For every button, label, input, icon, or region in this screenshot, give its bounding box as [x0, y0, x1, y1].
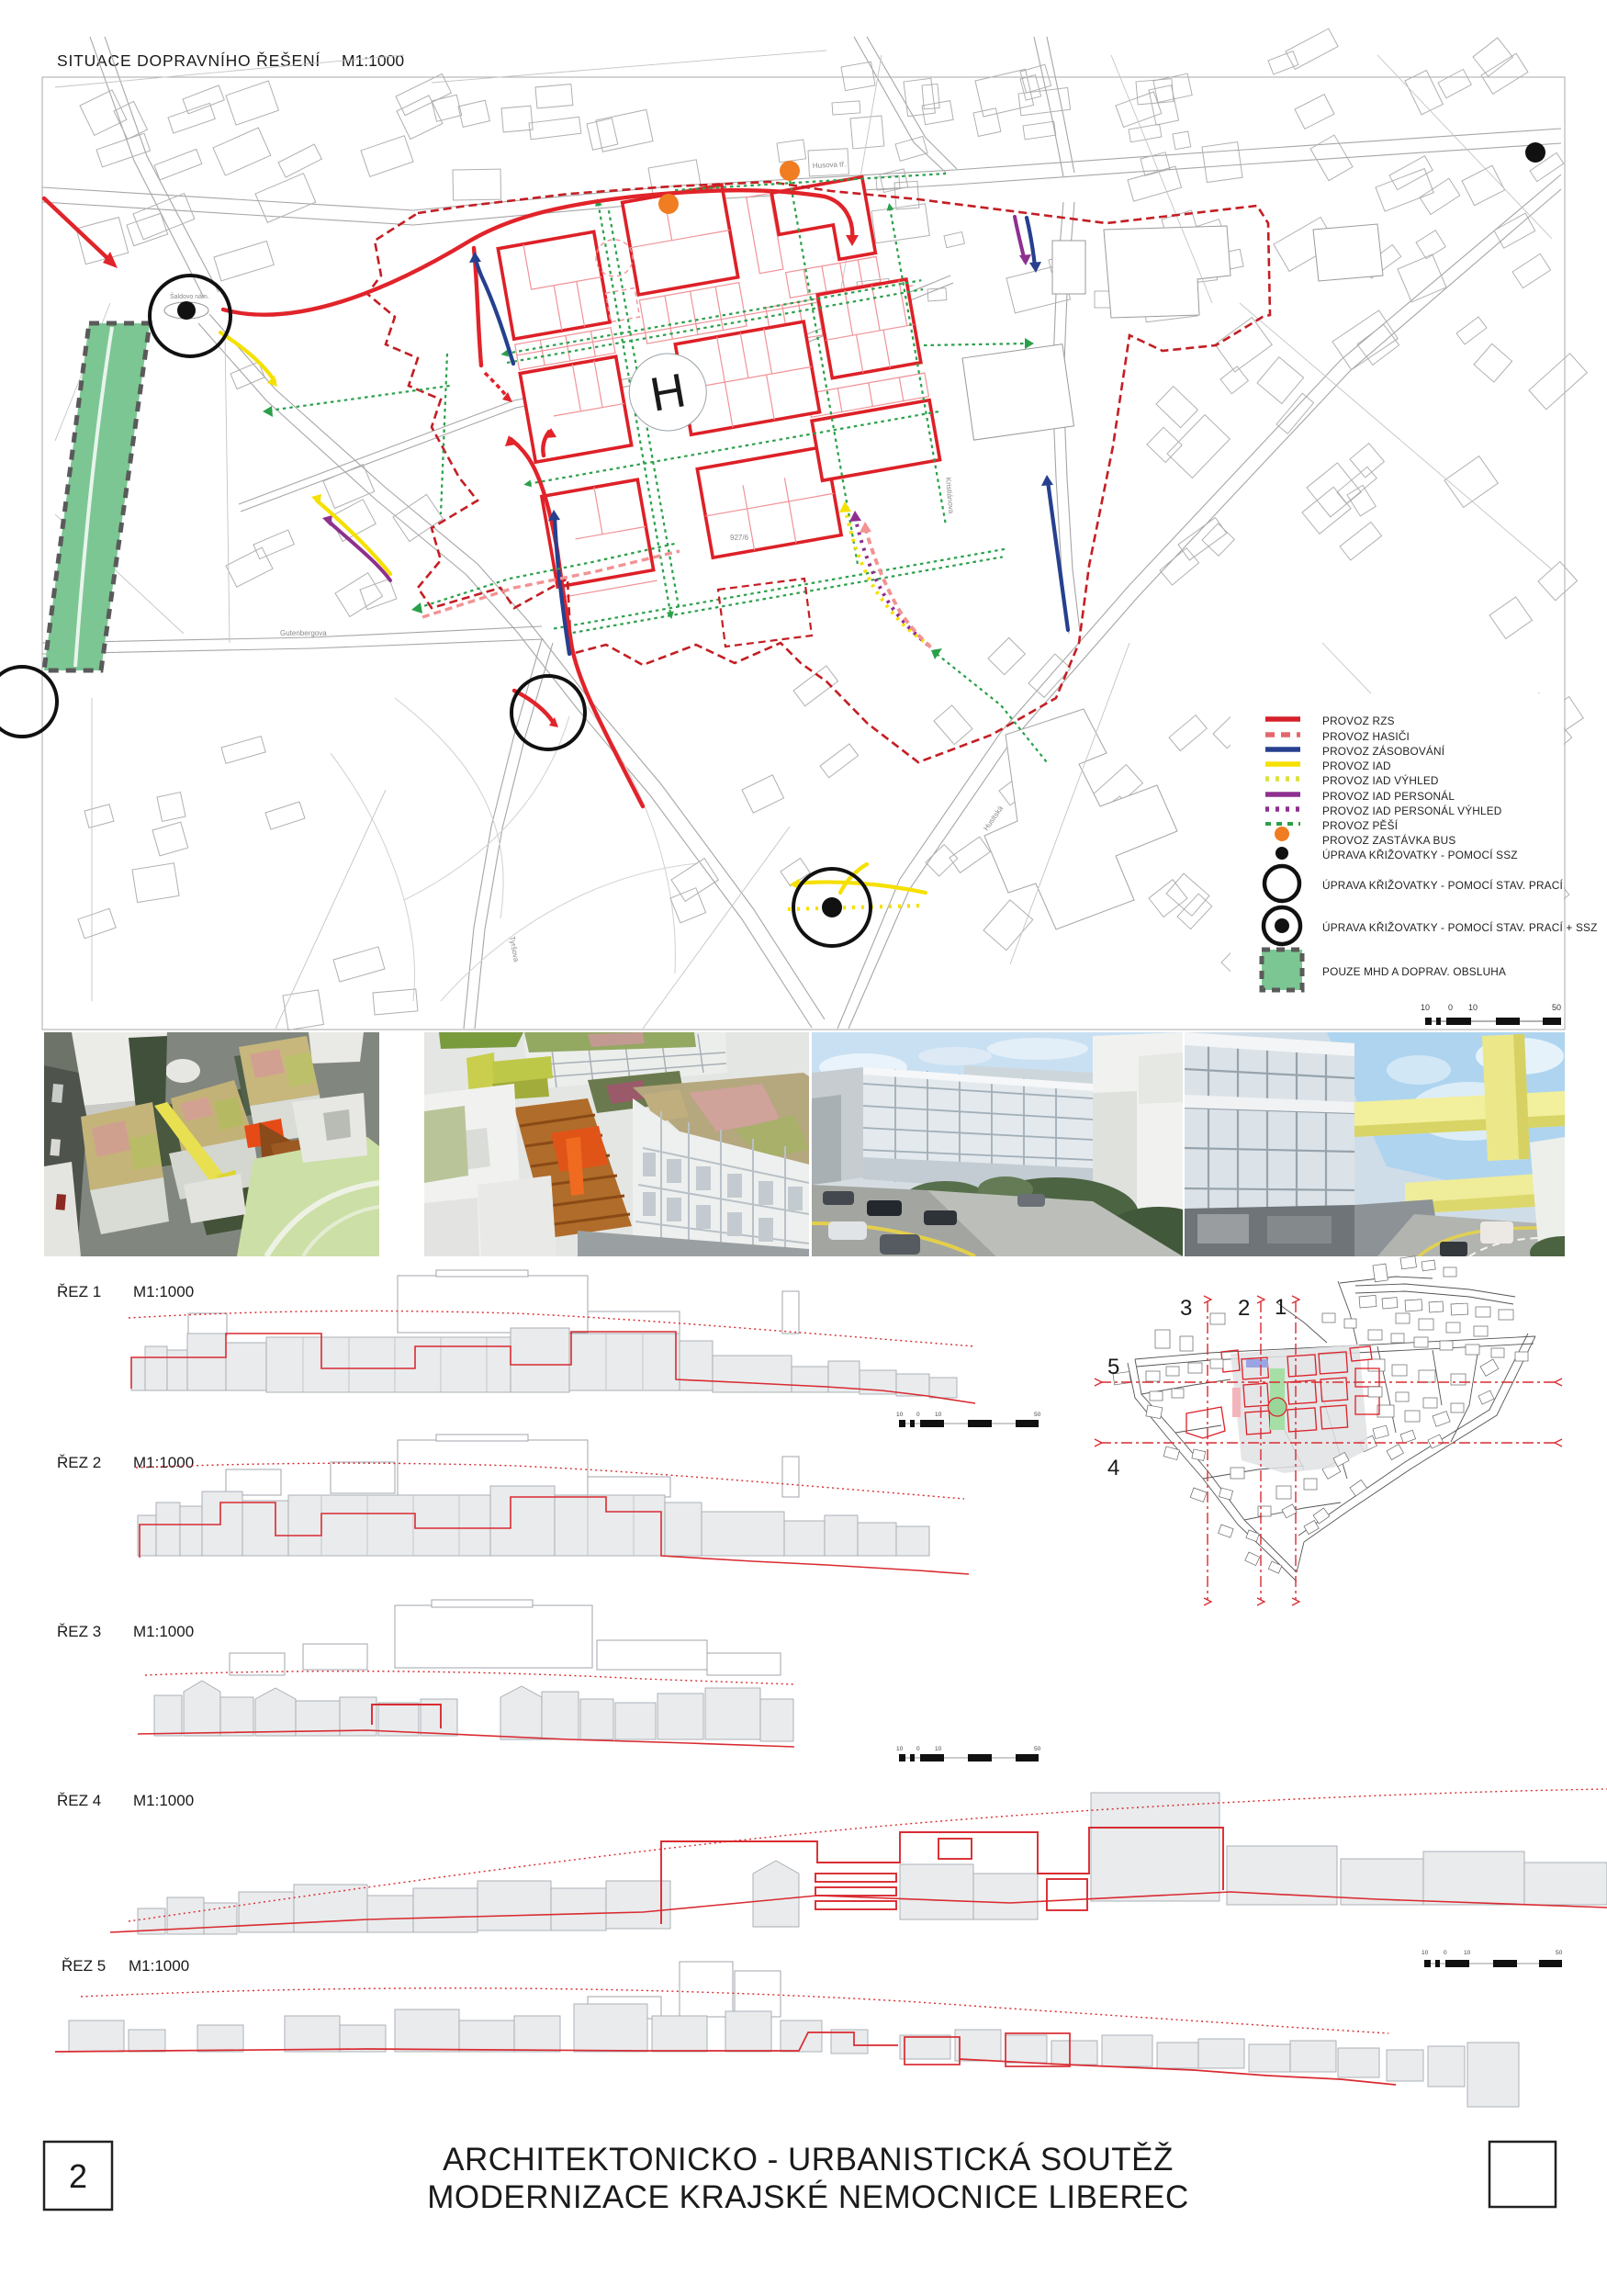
svg-text:50: 50 [1034, 1746, 1041, 1752]
svg-text:M1:1000: M1:1000 [133, 1792, 194, 1809]
svg-text:ŘEZ 5: ŘEZ 5 [62, 1957, 106, 1975]
svg-text:10: 10 [1422, 1950, 1429, 1956]
svg-text:M1:1000: M1:1000 [133, 1623, 194, 1640]
svg-text:10: 10 [896, 1746, 904, 1752]
svg-text:ŘEZ 2: ŘEZ 2 [57, 1454, 101, 1471]
svg-text:Tyršova: Tyršova [508, 936, 521, 963]
svg-text:M1:1000: M1:1000 [342, 51, 404, 70]
svg-text:10: 10 [1421, 1003, 1430, 1012]
svg-text:3: 3 [1180, 1296, 1192, 1321]
svg-text:0: 0 [1448, 1003, 1453, 1012]
svg-text:ŘEZ 3: ŘEZ 3 [57, 1623, 101, 1640]
svg-text:PROVOZ IAD: PROVOZ IAD [1322, 760, 1391, 772]
svg-text:M1:1000: M1:1000 [129, 1957, 189, 1975]
svg-text:PROVOZ PĚŠÍ: PROVOZ PĚŠÍ [1322, 819, 1399, 832]
svg-text:10: 10 [1464, 1950, 1471, 1956]
svg-text:MODERNIZACE KRAJSKÉ NEMOCNICE: MODERNIZACE KRAJSKÉ NEMOCNICE LIBEREC [427, 2179, 1188, 2215]
svg-text:SITUACE DOPRAVNÍHO ŘEŠENÍ: SITUACE DOPRAVNÍHO ŘEŠENÍ [57, 51, 320, 70]
svg-text:Gutenbergova: Gutenbergova [280, 629, 327, 637]
svg-text:4: 4 [1107, 1456, 1119, 1480]
svg-text:PROVOZ ZASTÁVKA BUS: PROVOZ ZASTÁVKA BUS [1322, 834, 1455, 847]
svg-text:2: 2 [1238, 1296, 1250, 1321]
svg-text:50: 50 [1556, 1950, 1563, 1956]
svg-text:PROVOZ IAD PERSONÁL: PROVOZ IAD PERSONÁL [1322, 790, 1455, 803]
svg-text:2: 2 [69, 2157, 87, 2195]
svg-text:0: 0 [1444, 1950, 1447, 1956]
svg-text:0: 0 [916, 1746, 920, 1752]
svg-text:10: 10 [896, 1412, 904, 1418]
svg-text:ŘEZ 4: ŘEZ 4 [57, 1792, 101, 1809]
svg-text:ÚPRAVA KŘIŽOVATKY - POMOCÍ STA: ÚPRAVA KŘIŽOVATKY - POMOCÍ STAV. PRACÍ +… [1322, 921, 1598, 934]
svg-text:M1:1000: M1:1000 [133, 1454, 194, 1471]
svg-text:927/6: 927/6 [730, 534, 749, 542]
svg-text:PROVOZ HASIČI: PROVOZ HASIČI [1322, 730, 1410, 743]
svg-text:Kristiánova: Kristiánova [944, 477, 955, 514]
svg-text:10: 10 [1468, 1003, 1478, 1012]
svg-text:0: 0 [916, 1412, 920, 1418]
svg-text:PROVOZ IAD PERSONÁL VÝHLED: PROVOZ IAD PERSONÁL VÝHLED [1322, 805, 1502, 817]
svg-text:M1:1000: M1:1000 [133, 1283, 194, 1300]
svg-text:ŘEZ 1: ŘEZ 1 [57, 1283, 101, 1300]
svg-text:ÚPRAVA KŘIŽOVATKY - POMOCÍ SSZ: ÚPRAVA KŘIŽOVATKY - POMOCÍ SSZ [1322, 849, 1518, 861]
svg-text:PROVOZ IAD VÝHLED: PROVOZ IAD VÝHLED [1322, 774, 1439, 787]
svg-text:1: 1 [1275, 1295, 1287, 1320]
svg-text:10: 10 [935, 1746, 942, 1752]
svg-text:10: 10 [935, 1412, 942, 1418]
svg-text:PROVOZ ZÁSOBOVÁNÍ: PROVOZ ZÁSOBOVÁNÍ [1322, 745, 1445, 758]
svg-text:ÚPRAVA KŘIŽOVATKY - POMOCÍ STA: ÚPRAVA KŘIŽOVATKY - POMOCÍ STAV. PRACÍ [1322, 879, 1563, 892]
svg-text:5: 5 [1107, 1355, 1119, 1379]
svg-text:POUZE MHD A DOPRAV. OBSLUHA: POUZE MHD A DOPRAV. OBSLUHA [1322, 965, 1506, 978]
svg-text:50: 50 [1034, 1412, 1041, 1418]
svg-text:Šaldovo nám.: Šaldovo nám. [170, 292, 209, 300]
svg-text:Husova tř.: Husova tř. [813, 160, 847, 170]
svg-text:ARCHITEKTONICKO - URBANISTICKÁ: ARCHITEKTONICKO - URBANISTICKÁ SOUTĚŽ [443, 2142, 1174, 2178]
svg-text:50: 50 [1552, 1003, 1561, 1012]
svg-text:PROVOZ RZS: PROVOZ RZS [1322, 715, 1395, 727]
